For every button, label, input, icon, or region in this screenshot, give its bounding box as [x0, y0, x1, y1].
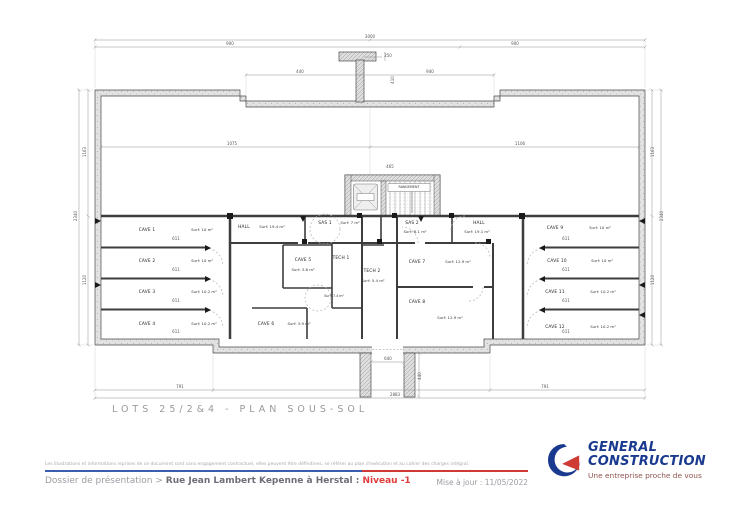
room-surface-label: Surf: 10 m²: [591, 258, 613, 263]
room-surface-label: Surf: 3.9 m²: [287, 321, 311, 326]
footer-rule-red: [362, 470, 528, 472]
room-surface-label: Surf: 12.9 m²: [437, 315, 463, 320]
room-surface-label: Surf: 12.9 m²: [445, 259, 471, 264]
dimension-label: 2340: [659, 210, 664, 221]
room-label: SAS 1: [318, 220, 332, 226]
footer-rule-blue: [45, 470, 362, 472]
dimension-label: 250: [384, 53, 392, 58]
room-label: TECH 1: [332, 255, 350, 261]
dimension-label: 2883: [390, 392, 401, 397]
room-label: CAVE 4: [139, 321, 156, 327]
wall-stub: [356, 60, 364, 102]
dimension-label: 611: [562, 236, 570, 241]
dimension-label: 440: [296, 69, 304, 74]
room-label: CAVE 9: [547, 225, 564, 231]
floor-plan: CAVE 1Surf: 10 m²CAVE 2Surf: 10 m²CAVE 3…: [0, 0, 736, 438]
disclaimer-text: Les illustrations et informations repris…: [45, 462, 469, 467]
breadcrumb-prefix: Dossier de présentation >: [45, 476, 166, 486]
dimension-label: 791: [541, 384, 549, 389]
dimension-label: 2340: [73, 210, 78, 221]
room-surface-label: Surf: 10.2 m²: [590, 289, 616, 294]
dimension-label: 1075: [227, 141, 238, 146]
dimension-label: 611: [172, 329, 180, 334]
room-surface-label: Surf: 10 m²: [191, 258, 213, 263]
room-surface-label: Surf: 8.1 m²: [403, 229, 427, 234]
dimension-label: 1163: [82, 146, 87, 157]
room-surface-label: Surf: 7 m²: [340, 220, 360, 225]
elevator-icon: [354, 184, 378, 210]
plan-title: LOTS 25/2&4 - PLAN SOUS-SOL: [112, 404, 368, 415]
room-label: CAVE 6: [258, 321, 275, 327]
room-label: TECH 2: [363, 268, 381, 274]
logo-text: GENERAL CONSTRUCTION Une entreprise proc…: [588, 441, 706, 480]
ramp-wall: [404, 353, 415, 397]
room-label: CAVE 5: [295, 257, 312, 263]
logo-line1: GENERAL: [588, 441, 706, 455]
dimension-label: 465: [386, 164, 394, 169]
dimension-label: 1120: [82, 274, 87, 285]
dimension-label: 611: [562, 267, 570, 272]
room-surface-label: Surf: 10 m²: [589, 225, 611, 230]
dimension-label: 900: [511, 41, 519, 46]
room-label: HALL: [238, 224, 250, 230]
outer-walls: [95, 52, 645, 397]
breadcrumb-level: Niveau -1: [363, 476, 411, 486]
dimension-label: 900: [226, 41, 234, 46]
dimension-label: 611: [172, 236, 180, 241]
dimension-label: 611: [172, 298, 180, 303]
room-surface-label: Surf: 10.2 m²: [191, 321, 217, 326]
room-surface-label: Surf: 5.4 m²: [361, 278, 385, 283]
dimension-label: 440: [417, 372, 422, 380]
annotation-label: RANGEMENT: [399, 185, 421, 189]
dimension-label: 640: [384, 356, 392, 361]
room-label: CAVE 10: [547, 258, 567, 264]
dimension-label: 1120: [650, 274, 655, 285]
logo-mark-icon: [545, 441, 583, 483]
stair-elevator-core: [345, 175, 440, 216]
room-label: CAVE 2: [139, 258, 156, 264]
dimension-label: 3000: [365, 34, 376, 39]
room-surface-label: Surf: 19.4 m²: [259, 224, 285, 229]
presentation-sheet: CAVE 1Surf: 10 m²CAVE 2Surf: 10 m²CAVE 3…: [0, 0, 736, 521]
footer: Les illustrations et informations repris…: [0, 440, 736, 521]
dimension-label: 940: [426, 69, 434, 74]
room-label: CAVE 3: [139, 289, 156, 295]
breadcrumb-address: Rue Jean Lambert Kepenne à Herstal :: [166, 476, 363, 486]
room-label: CAVE 1: [139, 227, 156, 233]
room-surface-label: Surf: 10.2 m²: [590, 324, 616, 329]
dimension-label: 791: [176, 384, 184, 389]
company-logo: GENERAL CONSTRUCTION Une entreprise proc…: [545, 441, 706, 483]
dimension-label: 611: [562, 329, 570, 334]
breadcrumb: Dossier de présentation > Rue Jean Lambe…: [45, 476, 411, 486]
room-surface-label: Surf: 19.1 m²: [464, 229, 490, 234]
dimension-label: 410: [390, 76, 395, 84]
room-label: CAVE 7: [409, 259, 426, 265]
room-label: CAVE 8: [409, 299, 426, 305]
room-surface-label: Surf: 3.6 m²: [291, 267, 315, 272]
dimension-label: 611: [562, 298, 570, 303]
annotation-label: Surf: 7.4 m²: [324, 294, 344, 298]
logo-line2: CONSTRUCTION: [588, 455, 706, 469]
ramp-wall: [360, 353, 371, 397]
dimension-label: 1163: [650, 146, 655, 157]
room-surface-label: Surf: 10 m²: [191, 227, 213, 232]
room-label: SAS 2: [405, 220, 419, 226]
room-surface-label: Surf: 10.2 m²: [191, 289, 217, 294]
room-label: HALL: [473, 220, 485, 226]
room-label: CAVE 11: [545, 289, 565, 295]
dimension-label: 611: [172, 267, 180, 272]
room-labels: CAVE 1Surf: 10 m²CAVE 2Surf: 10 m²CAVE 3…: [139, 220, 617, 330]
updated-date: Mise à jour : 11/05/2022: [408, 478, 528, 487]
dimension-label: 1106: [515, 141, 526, 146]
logo-tagline: Une entreprise proche de vous: [588, 471, 706, 480]
